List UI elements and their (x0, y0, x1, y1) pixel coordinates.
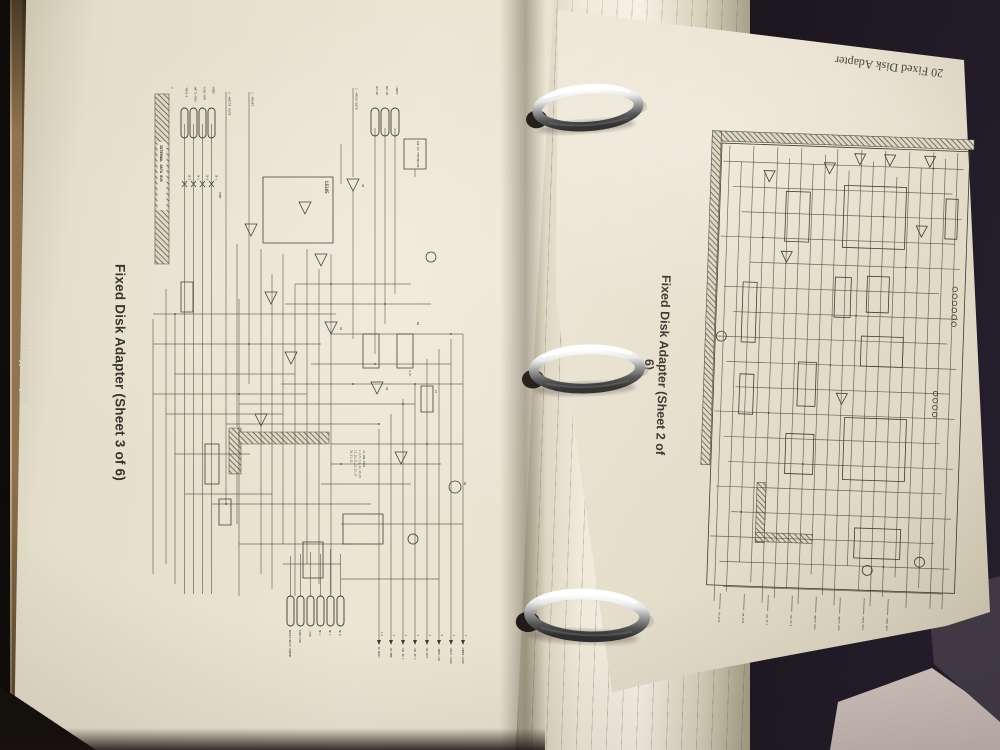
pin-number: 5 (404, 635, 407, 637)
pin-ref: 28-5 (188, 174, 191, 180)
ref-label: 2 (170, 87, 174, 89)
ref-label: 04 (361, 184, 365, 188)
photo-scene: Miscellaneous INTERNAL DATA BUS -READY -… (0, 0, 1000, 750)
sheet3-schematic: INTERNAL DATA BUS -READY -DISK COMP -WRI… (141, 84, 471, 704)
signal-label: -RD GATE (425, 647, 428, 659)
signal-label: -SEL DR 1 (401, 647, 404, 660)
signal-label: AM RESET (377, 647, 380, 659)
output-signals: +POWER CLOCK -DELAY CLOCK -10MHZ CLK -RD… (377, 632, 467, 664)
ref-label: C3 (434, 390, 438, 394)
pin-number: 5 (416, 635, 419, 637)
signal-label: -READ DATA (885, 617, 889, 632)
signal-label: -WRITE FAULT (194, 86, 197, 103)
pin-ref: 28-1 (215, 174, 218, 180)
ref-label: Q6 (463, 482, 467, 486)
sheet2-schematic: -READ DATA +READ DATA -WRITE DATA +WRITE… (688, 130, 975, 619)
signal-label: -DELAY CLOCK (449, 647, 452, 664)
signal-label: -TRACK 0 (185, 86, 188, 98)
pin-ref: 28-3 (197, 174, 200, 180)
pin-number: 2 (452, 635, 455, 637)
signal-label: -STEP (308, 630, 311, 638)
signal-label: -WR GATE (741, 612, 744, 624)
signal-label: -AM ENBL (389, 647, 392, 659)
spine-label: Miscellaneous (17, 294, 33, 422)
signal-label: HD 0 (338, 630, 341, 636)
gnd-note: J1 GND PINS 1,3,5,7,9,11,13,15 17,19,21,… (349, 450, 366, 480)
pin-number: 2 (392, 635, 395, 637)
signal-label: 2 —READ GATE (355, 88, 359, 110)
signal-label: -DISK COMP (203, 86, 206, 100)
signal-label: +POWER CLOCK (461, 647, 464, 664)
term-label: TERM (218, 192, 222, 199)
term-label: A10 SIP TERMINATION (416, 141, 419, 168)
signal-label: 2 —WRITE GATE (228, 92, 232, 116)
signal-label: REDUCE WRITE CURRENT (288, 630, 291, 658)
signal-label: -RD GATE (717, 611, 720, 623)
bottom-shadow (0, 728, 545, 750)
pin-number: 3,6 (380, 632, 383, 637)
signal-label: -10MHZ CLK (437, 647, 440, 661)
ic-label: LS165 (324, 181, 329, 194)
ref-label: 04 (339, 327, 343, 331)
pin-ref: 28-8 (206, 174, 209, 180)
wire-grid (153, 88, 463, 640)
signal-label: -READY (212, 86, 215, 95)
left-page-title: Fixed Disk Adapter (Sheet 3 of 6) (111, 263, 128, 483)
signal-label: DIRECTION (298, 630, 301, 643)
signal-label: -WRITE DATA (837, 615, 841, 631)
signal-label: +READ DATA (861, 616, 865, 631)
ref-label: 4.7K (408, 370, 412, 377)
signal-label: -SEL HD 0 (789, 614, 792, 627)
signal-label: +INDEX (395, 86, 398, 95)
signal-label: -SEL HD 1 (765, 613, 768, 626)
input-connectors: -READY -DISK COMP -WRITE FAULT -TRACK 0 … (181, 86, 222, 199)
binder-ring-top (519, 75, 657, 143)
wire-grid (708, 145, 964, 609)
signal-label: +WRITE DATA (813, 615, 817, 631)
bus-label: INTERNAL DATA BUS (159, 145, 163, 182)
signal-label: SEL RDY (375, 86, 378, 96)
binder-ring-middle (516, 338, 658, 404)
pin-number: 6 (440, 635, 443, 637)
pin-number: 2 (464, 635, 467, 637)
pin-number: 5 (428, 635, 431, 637)
ref-label: 04 (385, 387, 389, 391)
binder-ring-bottom (510, 581, 665, 654)
logic-gates (245, 179, 407, 464)
signal-label: HD 2 (318, 630, 321, 636)
signal-label: DRV SEL (385, 86, 388, 96)
signal-label: 1 —RESET (251, 92, 255, 107)
signal-label: -SEL DR 2 (413, 647, 416, 660)
signal-label: HD 1 (328, 630, 331, 636)
ref-label: R4 (416, 322, 420, 326)
output-connectors: HD 0 HD 1 HD 2 -STEP DIRECTION REDUCE WR… (287, 549, 344, 658)
